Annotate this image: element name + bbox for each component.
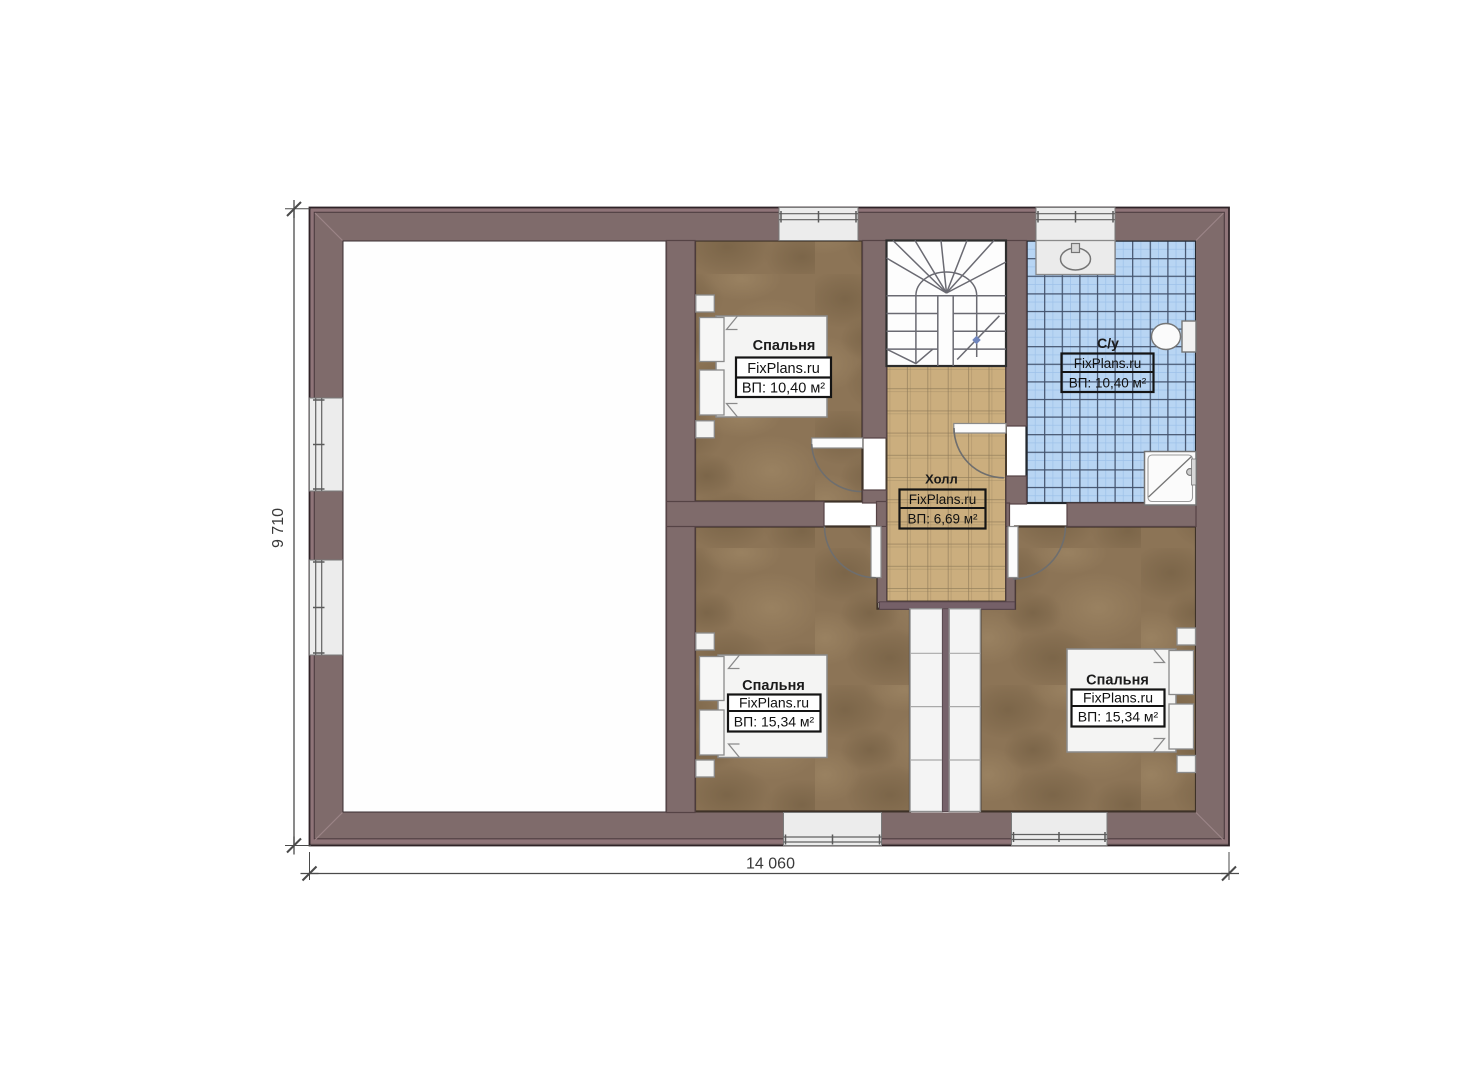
svg-text:С/у: С/у: [1097, 335, 1119, 351]
svg-text:14 060: 14 060: [746, 856, 795, 873]
svg-text:FixPlans.ru: FixPlans.ru: [747, 361, 820, 377]
svg-text:Холл: Холл: [925, 472, 958, 487]
svg-text:FixPlans.ru: FixPlans.ru: [1083, 690, 1153, 706]
svg-text:Спальня: Спальня: [753, 338, 816, 354]
svg-text:ВП: 15,34 м²: ВП: 15,34 м²: [1078, 709, 1159, 725]
svg-text:FixPlans.ru: FixPlans.ru: [909, 492, 977, 507]
svg-text:ВП: 10,40 м²: ВП: 10,40 м²: [742, 381, 825, 397]
svg-text:Спальня: Спальня: [742, 678, 805, 694]
svg-text:FixPlans.ru: FixPlans.ru: [1074, 356, 1142, 371]
svg-text:ВП: 15,34 м²: ВП: 15,34 м²: [734, 714, 815, 730]
svg-text:FixPlans.ru: FixPlans.ru: [739, 695, 809, 711]
svg-text:9 710: 9 710: [270, 508, 287, 548]
svg-text:ВП: 6,69 м²: ВП: 6,69 м²: [907, 512, 978, 527]
svg-text:Спальня: Спальня: [1086, 673, 1149, 689]
svg-text:ВП: 10,40 м²: ВП: 10,40 м²: [1069, 376, 1147, 391]
